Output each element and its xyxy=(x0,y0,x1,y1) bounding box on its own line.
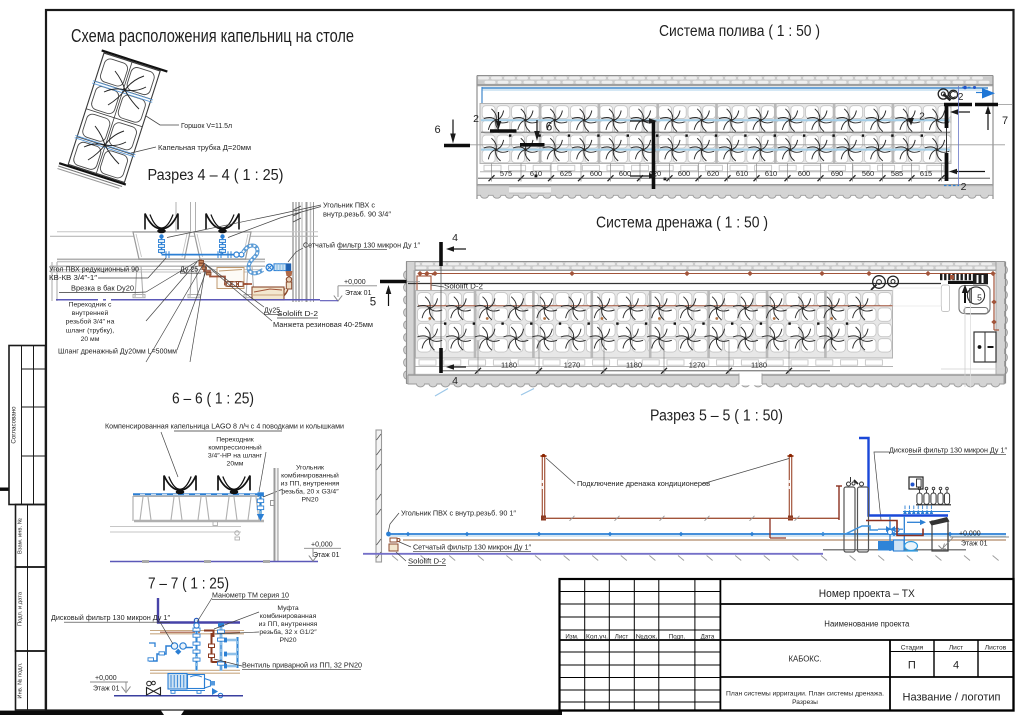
svg-text:№док.: №док. xyxy=(636,634,658,641)
svg-text:компрессионный: компрессионный xyxy=(208,444,262,452)
svg-text:Манжета резиновая 40-25мм: Манжета резиновая 40-25мм xyxy=(273,322,373,329)
svg-text:Дисковый фильтр 130 микрон Ду: Дисковый фильтр 130 микрон Ду 1″ xyxy=(51,613,170,622)
svg-text:Этаж 01: Этаж 01 xyxy=(313,552,340,559)
svg-text:2: 2 xyxy=(961,181,967,193)
svg-text:6 – 6 ( 1 : 25): 6 – 6 ( 1 : 25) xyxy=(172,391,254,408)
svg-text:Sololift D-2: Sololift D-2 xyxy=(444,282,483,291)
svg-text:Наименование проекта: Наименование проекта xyxy=(824,620,910,629)
svg-text:Лист: Лист xyxy=(615,634,629,641)
svg-text:1270: 1270 xyxy=(689,361,705,370)
svg-text:Врезка в бак Dy20: Врезка в бак Dy20 xyxy=(71,285,134,293)
svg-text:шланг (трубку),: шланг (трубку), xyxy=(66,326,114,334)
svg-text:Сетчатый фильтр 130 микрон Ду: Сетчатый фильтр 130 микрон Ду 1″ xyxy=(413,544,532,552)
svg-text:+0,000: +0,000 xyxy=(95,675,117,682)
svg-text:610: 610 xyxy=(736,169,748,178)
svg-text:Ду 25: Ду 25 xyxy=(180,267,198,274)
svg-text:Название / логотип: Название / логотип xyxy=(903,692,1001,704)
svg-text:4: 4 xyxy=(452,375,458,387)
svg-text:6: 6 xyxy=(546,120,553,134)
svg-text:6: 6 xyxy=(434,124,440,136)
svg-text:внутренней: внутренней xyxy=(72,309,109,317)
svg-text:Кол.уч.: Кол.уч. xyxy=(586,634,608,641)
svg-text:резьба, 20 х G3/4″: резьба, 20 х G3/4″ xyxy=(281,488,339,496)
svg-text:Муфта: Муфта xyxy=(277,605,299,612)
svg-text:Угольник ПВХ с внутр.резьб. 90: Угольник ПВХ с внутр.резьб. 90 1″ xyxy=(401,510,517,518)
svg-text:5: 5 xyxy=(977,293,982,303)
svg-text:Этаж 01: Этаж 01 xyxy=(345,290,372,297)
svg-text:+0,000: +0,000 xyxy=(344,279,366,286)
svg-text:+0,000: +0,000 xyxy=(959,531,981,538)
svg-text:4: 4 xyxy=(953,660,959,672)
svg-text:560: 560 xyxy=(862,169,874,178)
svg-text:Подп. и дата: Подп. и дата xyxy=(18,591,24,626)
svg-text:Лист: Лист xyxy=(949,644,963,651)
svg-text:+0,000: +0,000 xyxy=(311,542,333,549)
svg-text:внутр.резьб. 90 3/4″: внутр.резьб. 90 3/4″ xyxy=(323,211,392,219)
svg-text:комбинированный: комбинированный xyxy=(281,472,339,480)
svg-text:Этаж 01: Этаж 01 xyxy=(93,686,120,693)
svg-text:Sololift D-2: Sololift D-2 xyxy=(277,309,318,318)
svg-text:Переходник с: Переходник с xyxy=(69,302,112,309)
svg-text:Изм.: Изм. xyxy=(565,634,579,641)
svg-text:Манометр ТМ серия 10: Манометр ТМ серия 10 xyxy=(212,591,289,600)
svg-text:Согласовано: Согласовано xyxy=(11,406,18,444)
svg-text:Вентиль приварной из ПП, 32 PN: Вентиль приварной из ПП, 32 PN20 xyxy=(242,661,362,670)
svg-text:Разрез 5 – 5 ( 1 : 50): Разрез 5 – 5 ( 1 : 50) xyxy=(650,408,783,425)
svg-text:620: 620 xyxy=(707,169,719,178)
svg-text:Подключение дренажа кондиционе: Подключение дренажа кондиционеров xyxy=(577,479,710,488)
svg-text:Взам. инв. №: Взам. инв. № xyxy=(18,518,24,554)
svg-text:PN20: PN20 xyxy=(279,637,296,644)
svg-text:Номер проекта – ТХ: Номер проекта – ТХ xyxy=(819,588,916,600)
svg-text:Разрезы: Разрезы xyxy=(792,699,818,706)
svg-text:1180: 1180 xyxy=(501,361,517,370)
svg-text:610: 610 xyxy=(530,169,542,178)
svg-text:Инв. № подл.: Инв. № подл. xyxy=(18,662,24,698)
svg-text:4: 4 xyxy=(452,232,458,244)
svg-text:585: 585 xyxy=(891,169,903,178)
svg-text:Система полива ( 1 : 50 ): Система полива ( 1 : 50 ) xyxy=(659,23,820,40)
svg-text:625: 625 xyxy=(560,169,572,178)
svg-text:600: 600 xyxy=(798,169,810,178)
svg-text:2: 2 xyxy=(919,112,925,123)
svg-text:1270: 1270 xyxy=(564,361,580,370)
svg-text:из ПП, внутренняя: из ПП, внутренняя xyxy=(259,621,318,628)
svg-text:Схема расположения капельниц н: Схема расположения капельниц на столе xyxy=(71,26,354,46)
svg-text:2: 2 xyxy=(473,113,479,125)
svg-text:Сетчатый фильтр 130 микрон Ду: Сетчатый фильтр 130 микрон Ду 1″ xyxy=(303,242,421,250)
svg-text:резьбой 3/4″ на: резьбой 3/4″ на xyxy=(66,318,115,326)
svg-text:Угол ПВХ редукционный 90: Угол ПВХ редукционный 90 xyxy=(49,266,139,274)
svg-text:План системы ирригации. План с: План системы ирригации. План системы дре… xyxy=(726,691,884,698)
svg-text:PN20: PN20 xyxy=(301,497,318,504)
svg-text:600: 600 xyxy=(678,169,690,178)
svg-text:Угольник ПВХ с: Угольник ПВХ с xyxy=(323,203,376,210)
svg-text:Компенсированная капельница LA: Компенсированная капельница LAGO 8 л/ч с… xyxy=(105,422,344,431)
svg-text:комбинированная: комбинированная xyxy=(260,612,317,620)
svg-text:Дата: Дата xyxy=(701,634,715,641)
svg-text:615: 615 xyxy=(920,169,932,178)
svg-text:Стадия: Стадия xyxy=(901,644,924,651)
svg-text:7: 7 xyxy=(1002,115,1008,127)
svg-text:5: 5 xyxy=(370,297,376,309)
svg-text:из ПП, внутренняя: из ПП, внутренняя xyxy=(281,481,340,488)
svg-text:резьба, 32 х G1/2″: резьба, 32 х G1/2″ xyxy=(259,628,317,636)
svg-text:610: 610 xyxy=(765,169,777,178)
svg-text:КВ-КВ 3/4″-1″: КВ-КВ 3/4″-1″ xyxy=(49,275,98,282)
svg-text:20мм: 20мм xyxy=(227,461,244,468)
svg-text:Дисковый фильтр 130 микрон Ду: Дисковый фильтр 130 микрон Ду 1″ xyxy=(889,446,1007,455)
svg-text:600: 600 xyxy=(619,169,631,178)
svg-text:Переходник: Переходник xyxy=(216,437,254,444)
svg-text:Система дренажа ( 1 : 50 ): Система дренажа ( 1 : 50 ) xyxy=(596,215,768,232)
svg-text:Шланг дренажный Ду20мм L=500м: Шланг дренажный Ду20мм L=500мм xyxy=(58,348,177,356)
svg-text:Sololift D-2: Sololift D-2 xyxy=(408,557,446,566)
svg-text:1180: 1180 xyxy=(751,361,767,370)
svg-text:1180: 1180 xyxy=(626,361,642,370)
svg-text:20 мм: 20 мм xyxy=(81,336,100,343)
svg-text:Горшок V=11.5л: Горшок V=11.5л xyxy=(181,121,232,130)
svg-text:690: 690 xyxy=(831,169,843,178)
svg-text:600: 600 xyxy=(590,169,602,178)
svg-text:3/4″-НР на шланг: 3/4″-НР на шланг xyxy=(208,453,263,460)
svg-text:Угольник: Угольник xyxy=(296,465,324,472)
svg-text:Этаж 01: Этаж 01 xyxy=(961,541,988,548)
svg-text:575: 575 xyxy=(500,169,512,178)
svg-text:Подп.: Подп. xyxy=(669,634,686,641)
svg-text:Листов: Листов xyxy=(985,644,1007,651)
svg-text:Разрез 4 – 4 ( 1 : 25): Разрез 4 – 4 ( 1 : 25) xyxy=(148,167,284,184)
svg-text:Капельная трубка Д=20мм: Капельная трубка Д=20мм xyxy=(158,143,251,152)
svg-text:П: П xyxy=(908,660,916,672)
svg-text:КАБОКС.: КАБОКС. xyxy=(788,655,821,664)
